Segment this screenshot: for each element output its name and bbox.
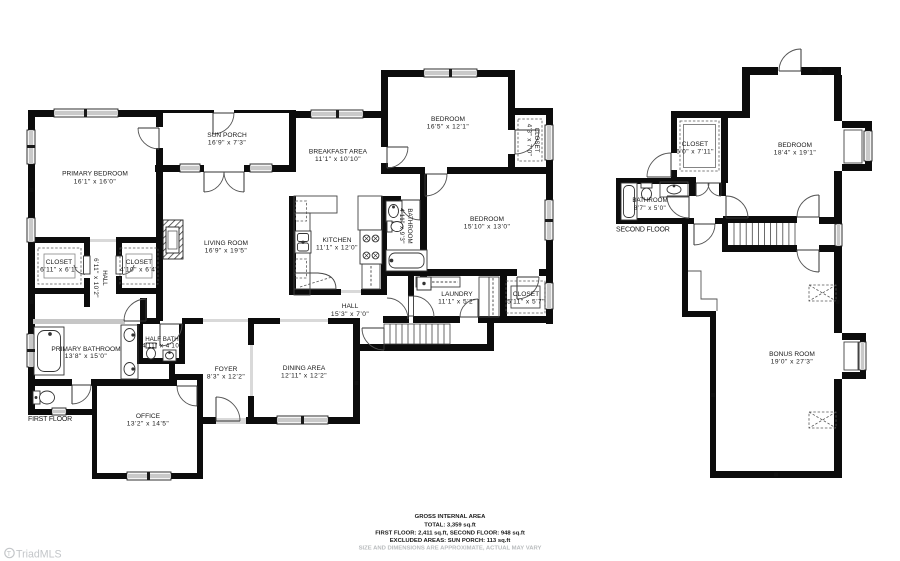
svg-text:BEDROOM: BEDROOM bbox=[470, 216, 504, 223]
svg-text:12’11" x 12’2": 12’11" x 12’2" bbox=[281, 373, 327, 380]
svg-text:4’3" x 7’0": 4’3" x 7’0" bbox=[526, 124, 533, 156]
svg-text:BEDROOM: BEDROOM bbox=[778, 142, 812, 149]
svg-text:8’7" x 5’0": 8’7" x 5’0" bbox=[634, 205, 666, 212]
svg-text:EXCLUDED AREAS: SUN PORCH: 113: EXCLUDED AREAS: SUN PORCH: 113 sq.ft bbox=[390, 538, 511, 544]
svg-text:DINING AREA: DINING AREA bbox=[283, 365, 326, 372]
svg-text:11’1" x 5’2": 11’1" x 5’2" bbox=[438, 299, 476, 306]
svg-text:PRIMARY BATHROOM: PRIMARY BATHROOM bbox=[51, 346, 120, 353]
svg-text:BATHROOM: BATHROOM bbox=[406, 208, 413, 243]
svg-text:CLOSET: CLOSET bbox=[682, 141, 708, 148]
svg-text:CLOSET: CLOSET bbox=[126, 259, 152, 266]
svg-text:BREAKFAST AREA: BREAKFAST AREA bbox=[309, 149, 368, 156]
svg-text:T: T bbox=[7, 551, 12, 558]
svg-text:TOTAL: 3,359 sq.ft: TOTAL: 3,359 sq.ft bbox=[424, 523, 476, 529]
svg-text:CLOSET: CLOSET bbox=[46, 259, 72, 266]
svg-text:SIZE AND DIMENSIONS ARE APPROX: SIZE AND DIMENSIONS ARE APPROXIMATE, ACT… bbox=[359, 546, 542, 552]
svg-text:4’10" x 6’4": 4’10" x 6’4" bbox=[120, 267, 159, 274]
svg-text:6’11" x 6’1": 6’11" x 6’1" bbox=[40, 267, 78, 274]
svg-text:HALL: HALL bbox=[101, 270, 108, 286]
svg-text:HALL: HALL bbox=[342, 303, 359, 310]
svg-text:TriadMLS: TriadMLS bbox=[16, 549, 62, 561]
svg-text:13’8" x 15’0": 13’8" x 15’0" bbox=[65, 353, 108, 360]
svg-text:4’11" x 9’3": 4’11" x 9’3" bbox=[398, 208, 405, 244]
svg-text:LIVING ROOM: LIVING ROOM bbox=[204, 240, 248, 247]
svg-text:BATHROOM: BATHROOM bbox=[632, 197, 667, 204]
svg-text:16’9" x 19’5": 16’9" x 19’5" bbox=[205, 248, 248, 255]
svg-text:11’1" x 12’0": 11’1" x 12’0" bbox=[316, 245, 358, 252]
svg-text:13’2" x 14’5": 13’2" x 14’5" bbox=[127, 421, 170, 428]
svg-text:LAUNDRY: LAUNDRY bbox=[441, 291, 473, 298]
svg-text:SUN PORCH: SUN PORCH bbox=[207, 132, 247, 139]
svg-text:GROSS INTERNAL AREA: GROSS INTERNAL AREA bbox=[415, 514, 486, 520]
svg-text:BEDROOM: BEDROOM bbox=[431, 116, 465, 123]
svg-text:KITCHEN: KITCHEN bbox=[323, 237, 352, 244]
svg-text:16’1" x 16’0": 16’1" x 16’0" bbox=[74, 179, 117, 186]
svg-text:OFFICE: OFFICE bbox=[136, 413, 161, 420]
svg-text:16’5" x 12’1": 16’5" x 12’1" bbox=[427, 124, 470, 131]
svg-text:5’11" x 5’7": 5’11" x 5’7" bbox=[507, 299, 545, 306]
svg-text:FIRST FLOOR: 2,411 sq.ft, SECO: FIRST FLOOR: 2,411 sq.ft, SECOND FLOOR: … bbox=[375, 531, 525, 537]
svg-text:FIRST FLOOR: FIRST FLOOR bbox=[28, 416, 72, 423]
svg-text:CLOSET: CLOSET bbox=[513, 291, 539, 298]
svg-text:BONUS ROOM: BONUS ROOM bbox=[769, 351, 815, 358]
svg-text:CLOSET: CLOSET bbox=[533, 128, 540, 153]
svg-text:18’4" x 19’1": 18’4" x 19’1" bbox=[774, 150, 817, 157]
svg-text:16’9" x 7’3": 16’9" x 7’3" bbox=[208, 140, 247, 147]
svg-text:FOYER: FOYER bbox=[215, 366, 238, 373]
svg-text:11’1" x 10’10": 11’1" x 10’10" bbox=[315, 156, 361, 163]
svg-text:SECOND FLOOR: SECOND FLOOR bbox=[616, 227, 670, 234]
svg-text:15’10" x 13’0": 15’10" x 13’0" bbox=[464, 224, 511, 231]
svg-text:6’0" x 7’11": 6’0" x 7’11" bbox=[676, 149, 714, 156]
svg-text:8’3" x 12’2": 8’3" x 12’2" bbox=[207, 374, 246, 381]
svg-text:PRIMARY BEDROOM: PRIMARY BEDROOM bbox=[62, 171, 128, 178]
svg-text:4’11" x 4’10": 4’11" x 4’10" bbox=[142, 343, 182, 350]
svg-text:15’3" x 7’0": 15’3" x 7’0" bbox=[331, 311, 370, 318]
svg-text:19’0" x 27’3": 19’0" x 27’3" bbox=[771, 359, 814, 366]
svg-text:6’11" x 10’2": 6’11" x 10’2" bbox=[92, 258, 99, 298]
